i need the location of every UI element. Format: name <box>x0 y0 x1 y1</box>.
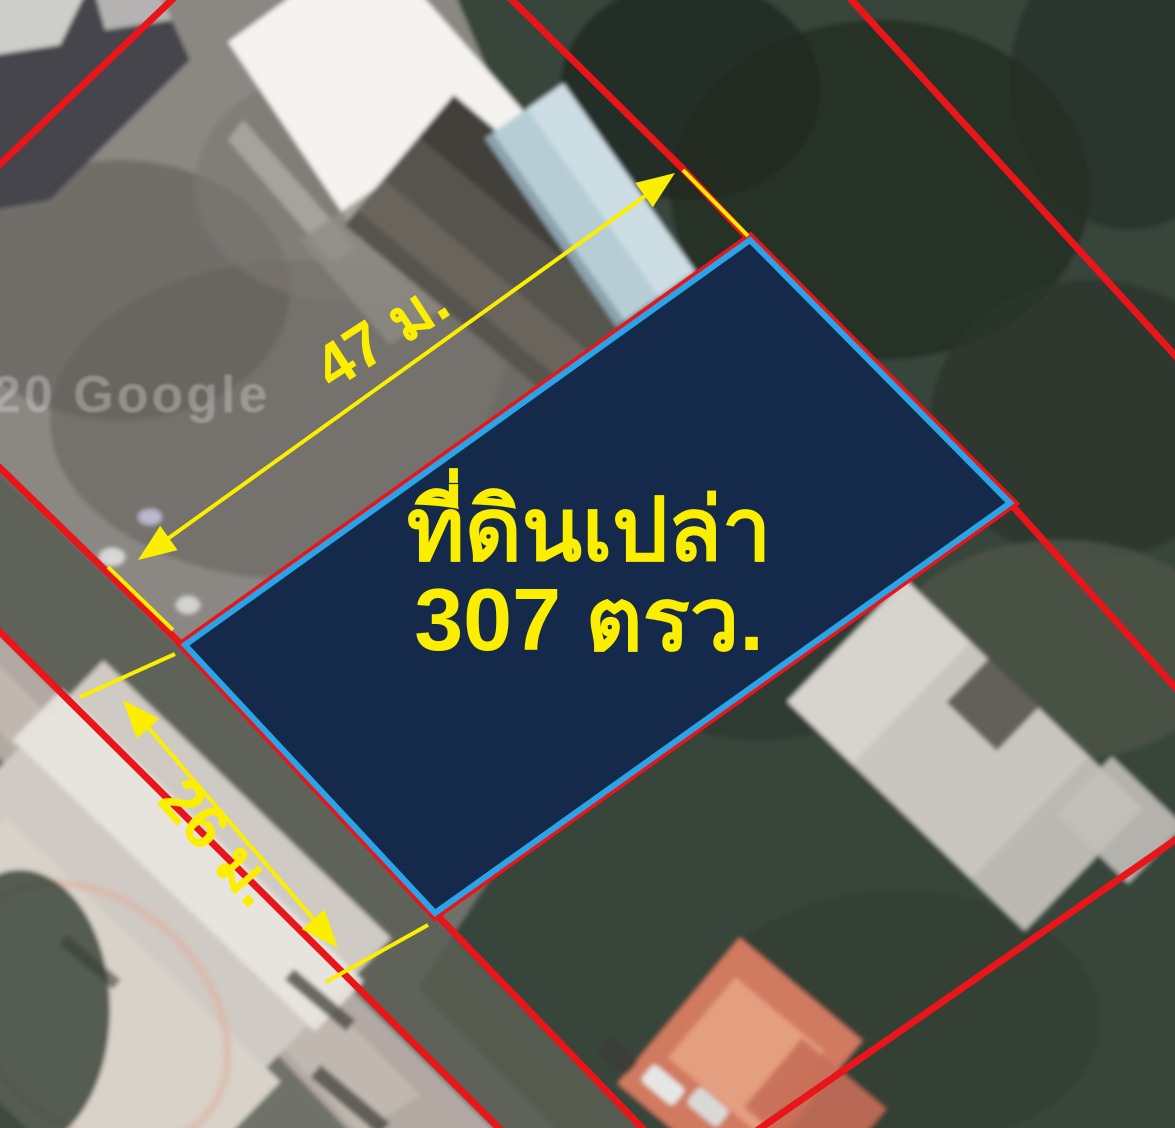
car <box>138 509 162 525</box>
parcel-area-label: 307 ตรว. <box>414 570 764 669</box>
satellite-map: 20 Google 47 ม. 26 ม. ที่ดินเปล่า 307 ตร… <box>0 0 1175 1128</box>
map-canvas: 20 Google 47 ม. 26 ม. ที่ดินเปล่า 307 ตร… <box>0 0 1175 1128</box>
car <box>176 596 200 614</box>
parcel-title: ที่ดินเปล่า <box>407 468 772 579</box>
map-watermark: 20 Google <box>0 366 270 424</box>
